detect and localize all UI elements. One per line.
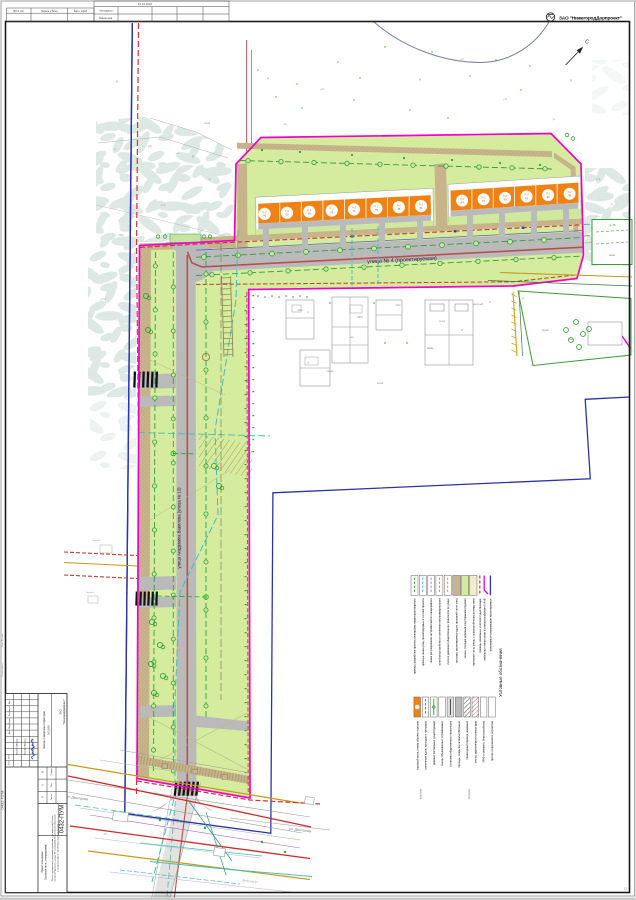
svg-text:Р-2: Р-2 [525, 193, 530, 197]
svg-text:10.10: 10.10 [9, 761, 11, 766]
svg-text:уч. 38: уч. 38 [609, 224, 616, 227]
svg-text:газоны, посадка деревьев и кус: газоны, посадка деревьев и кустарников р… [464, 598, 467, 658]
svg-text:выполнил: выполнил [421, 788, 423, 799]
svg-text:ЗАО "НижегородДорпроект": ЗАО "НижегородДорпроект" [559, 15, 622, 21]
svg-text:переулка Рудничного, улицы Июл: переулка Рудничного, улицы Июльских Дней… [54, 815, 57, 882]
svg-text:2КЖ: 2КЖ [297, 308, 303, 312]
svg-text:Лист: Лист [51, 783, 53, 787]
svg-text:Р-2: Р-2 [374, 205, 379, 209]
svg-text:Р-2: Р-2 [482, 195, 487, 199]
svg-text:кабельные линии связи и электр: кабельные линии связи и электроснабжения… [483, 598, 487, 660]
svg-text:Стадия: Стадия [51, 769, 53, 776]
svg-text:уч.2: уч.2 [596, 178, 601, 181]
svg-text:газон: газон [609, 254, 616, 257]
svg-text:2КЖ: 2КЖ [138, 756, 144, 759]
svg-text:пешеходный переход наземный: пешеходный переход наземный [465, 720, 469, 759]
svg-text:Условные обозначения: Условные обозначения [498, 648, 503, 697]
svg-text:проезжая часть улицы с асфальт: проезжая часть улицы с асфальтобетонным … [471, 598, 475, 665]
svg-text:уч.9: уч.9 [161, 204, 166, 207]
svg-text:откосы укрепляемые посевом тра: откосы укрепляемые посевом трав [474, 720, 477, 763]
svg-text:Р-2: Р-2 [285, 209, 290, 213]
svg-text:На подписи: На подписи [100, 10, 114, 13]
svg-text:остановка общественного трансп: остановка общественного транспорта [449, 720, 453, 766]
svg-text:×: × [307, 310, 309, 314]
svg-text:19.10.2010: 19.10.2010 [138, 2, 152, 6]
svg-text:Р-2: Р-2 [263, 210, 268, 214]
svg-text:уч.12: уч.12 [100, 298, 106, 301]
svg-text:зона благоустройства и озелене: зона благоустройства и озеленения внутри… [438, 598, 442, 666]
svg-text:тротуары проектируемые вдоль п: тротуары проектируемые вдоль проезжей ча… [455, 598, 459, 663]
svg-text:Инв. № подл.: Инв. № подл. [1, 633, 4, 647]
svg-text:С: С [585, 40, 589, 46]
svg-text:10.10: 10.10 [9, 755, 11, 760]
svg-text:Корнилова: Корнилова [25, 744, 27, 755]
svg-text:0432-ПУМ: 0432-ПУМ [0, 791, 4, 810]
svg-text:торговый киоск, номер объекта: торговый киоск, номер объекта торговли [415, 720, 419, 770]
svg-text:М 1:500: М 1:500 [47, 725, 51, 735]
svg-text:×: × [489, 300, 491, 304]
svg-text:пр.: пр. [208, 178, 212, 181]
svg-text:Листов: Листов [51, 794, 53, 801]
svg-text:1Н: 1Н [103, 833, 106, 836]
svg-text:"НижегородДорпроект": "НижегородДорпроект" [63, 699, 66, 725]
svg-text:Разраб.: Разраб. [17, 738, 19, 746]
svg-text:сарай: сарай [542, 329, 549, 332]
svg-text:границы разработки проекта пла: границы разработки проекта планировки те… [413, 598, 417, 674]
svg-text:Чертеж планировки территории: Чертеж планировки территории [42, 710, 46, 749]
svg-text:газоны обыкновенные устраиваем: газоны обыкновенные устраиваемые [440, 720, 444, 765]
svg-text:Изм.: Изм. [9, 700, 11, 705]
svg-text:13: 13 [624, 887, 628, 891]
svg-text:2КЖ: 2КЖ [396, 304, 402, 307]
svg-text:Основная часть, утверждаемая!: Основная часть, утверждаемая! [45, 844, 48, 880]
svg-text:Балт. офзб: Балт. офзб [74, 9, 88, 13]
svg-text:уч.: уч. [113, 148, 116, 151]
svg-text:Р-2: Р-2 [546, 191, 551, 195]
svg-text:2КЖ: 2КЖ [119, 234, 125, 237]
svg-text:Р-2: Р-2 [307, 208, 312, 212]
svg-text:уч.: уч. [552, 118, 555, 121]
svg-text:газ: газ [283, 123, 286, 126]
svg-text:№док.: №док. [8, 718, 11, 724]
svg-text:улица Академика Вавилова (улиц: улица Академика Вавилова (улица № 13) [177, 487, 182, 569]
svg-text:Р-2: Р-2 [330, 207, 335, 211]
svg-text:ФЛ-4 тип: ФЛ-4 тип [13, 9, 24, 13]
svg-text:границы земельных участков сущ: границы земельных участков существующие [479, 598, 482, 653]
svg-text:склад: склад [439, 321, 446, 323]
svg-text:проверил: проверил [469, 788, 471, 799]
svg-text:сарай: сарай [377, 382, 384, 385]
svg-text:газон: газон [427, 347, 434, 350]
svg-text:маг.: маг. [350, 336, 355, 339]
svg-text:Баня 7: Баня 7 [568, 338, 576, 341]
svg-text:Провер.: Провер. [25, 738, 27, 746]
svg-text:прочие сооружения и устройства: прочие сооружения и устройства [490, 720, 494, 760]
svg-text:Р-2: Р-2 [419, 202, 424, 206]
svg-text:гараж: гараж [327, 370, 334, 373]
svg-text:0432-ПУМ: 0432-ПУМ [59, 805, 65, 833]
svg-text:5КЖ: 5КЖ [357, 315, 363, 319]
svg-text:Кол.уч.: Кол.уч. [9, 706, 11, 713]
svg-text:красные линии улиц, проектируе: красные линии улиц, проектируемые в сост… [422, 598, 425, 666]
svg-text:Гараж М: Гараж М [92, 540, 101, 542]
svg-text:П: П [41, 771, 45, 773]
svg-text:инженерные коммуникации проект: инженерные коммуникации проектируемые [490, 598, 493, 651]
svg-text:Взамен инв.: Взамен инв. [99, 17, 113, 20]
svg-text:МАФ и элементы благоустройства: МАФ и элементы благоустройства [482, 720, 486, 762]
svg-text:2пр: 2пр [148, 145, 153, 148]
svg-text:деревья лиственные существующи: деревья лиственные существующие [433, 720, 436, 765]
svg-text:Н: Н [307, 362, 309, 365]
svg-text:Табель у безн: Табель у безн [41, 9, 58, 13]
svg-text:Согласовано: Согласовано [2, 663, 4, 677]
svg-text:Р-2: Р-2 [352, 206, 357, 210]
svg-text:проезды, покрытие асфальтобето: проезды, покрытие асфальтобетонное [457, 720, 461, 767]
svg-text:озеленение вдоль проездов и тр: озеленение вдоль проездов и тротуаров [425, 720, 428, 769]
svg-text:в городском районе г.Ораб Ниже: в городском районе г.Ораб Нижегородской … [56, 824, 59, 872]
svg-text:Р-2: Р-2 [503, 194, 508, 198]
svg-text:Р-2: Р-2 [568, 190, 573, 194]
svg-text:Р-2: Р-2 [397, 203, 402, 207]
svg-text:Н: Н [461, 329, 463, 332]
svg-text:Р-2: Р-2 [460, 197, 465, 201]
svg-text:Камбалова: Камбалова [17, 744, 19, 755]
svg-text:Лист: Лист [9, 712, 11, 716]
svg-text:местный: местный [473, 302, 484, 306]
svg-text:Проект планировки и межевания: Проект планировки и межевания территории… [52, 815, 54, 881]
svg-text:сарай: сарай [204, 122, 211, 125]
svg-text:Подп.: Подп. [9, 724, 11, 729]
svg-text:линии регулирования застройки: линии регулирования застройки жилого мик… [429, 598, 433, 663]
svg-text:Гараж Н: Гараж Н [86, 592, 95, 594]
svg-text:полоса движения общественного: полоса движения общественного транспорта… [446, 598, 450, 664]
